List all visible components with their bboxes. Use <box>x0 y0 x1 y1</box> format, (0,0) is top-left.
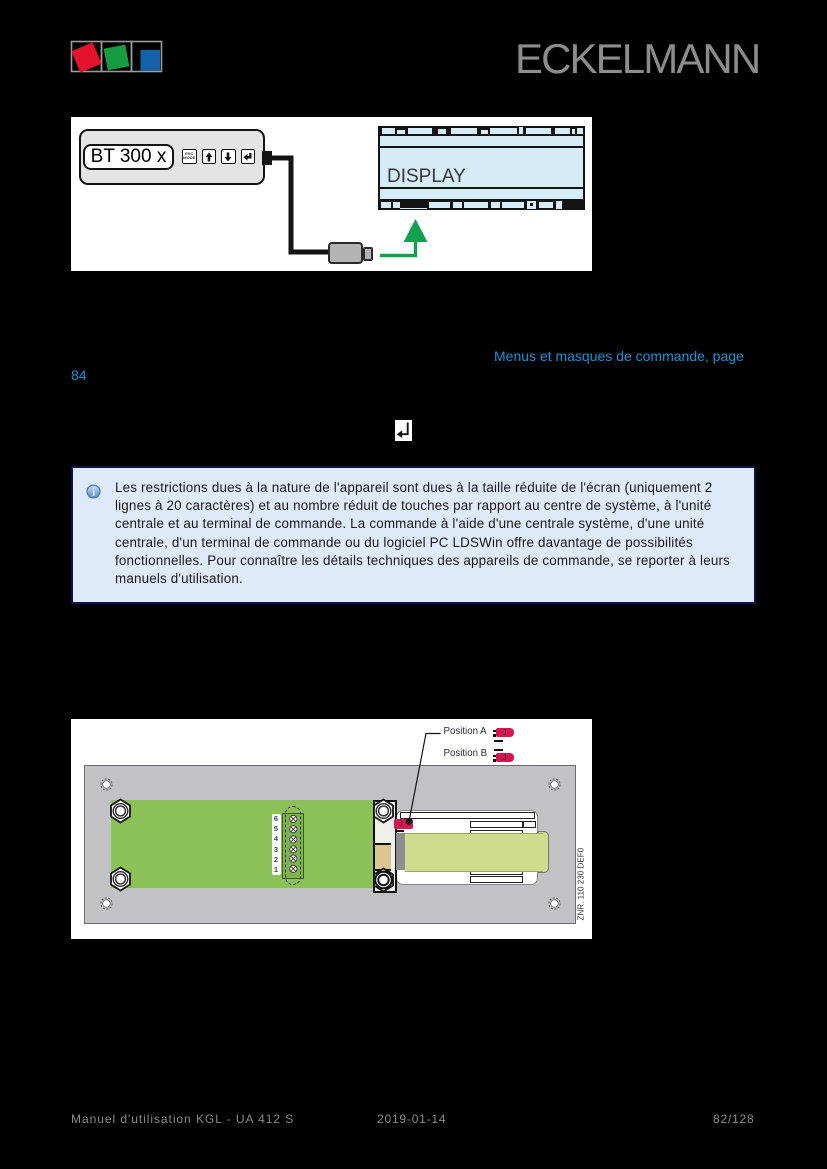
svg-text:i: i <box>92 487 95 498</box>
svg-text:ZNR. 110 230 DEF0: ZNR. 110 230 DEF0 <box>577 847 586 920</box>
